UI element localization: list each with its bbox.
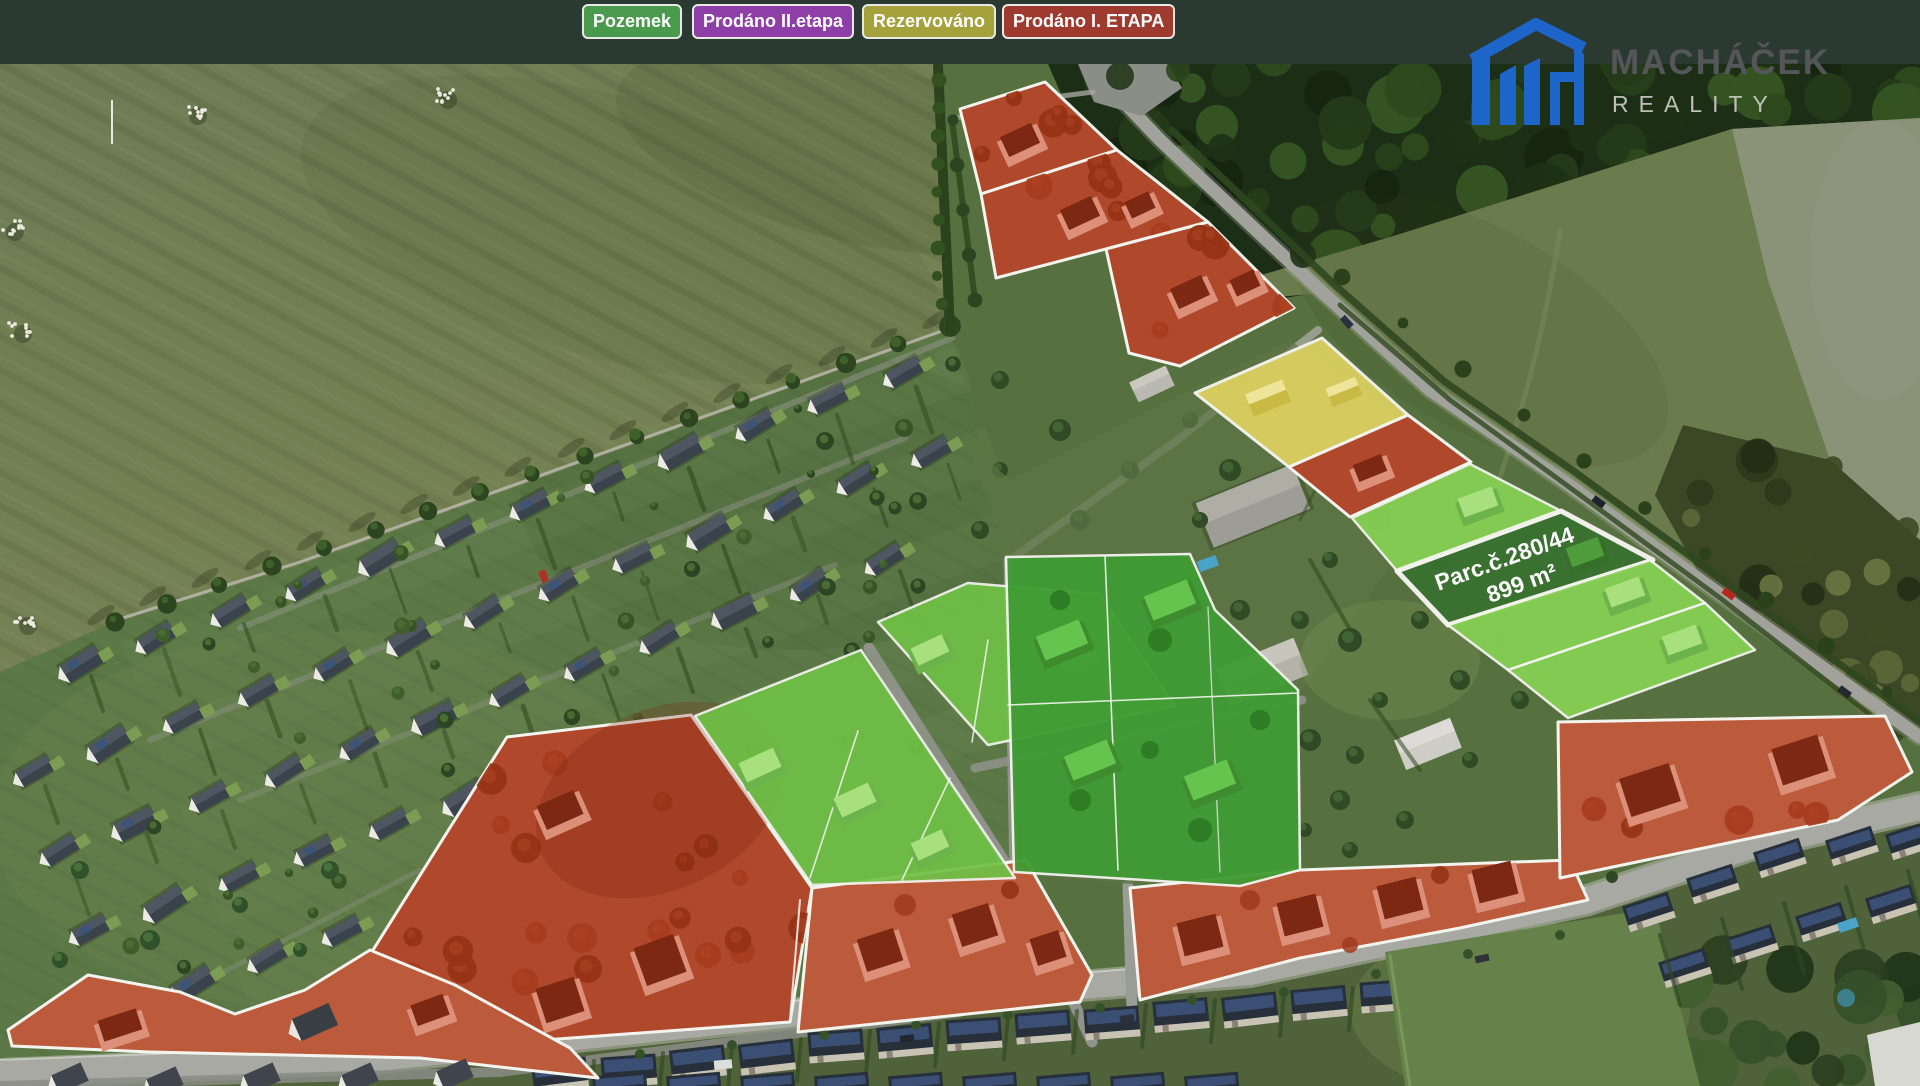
svg-text:REALITY: REALITY — [1612, 91, 1778, 117]
svg-text:MACHÁČEK: MACHÁČEK — [1610, 42, 1830, 82]
